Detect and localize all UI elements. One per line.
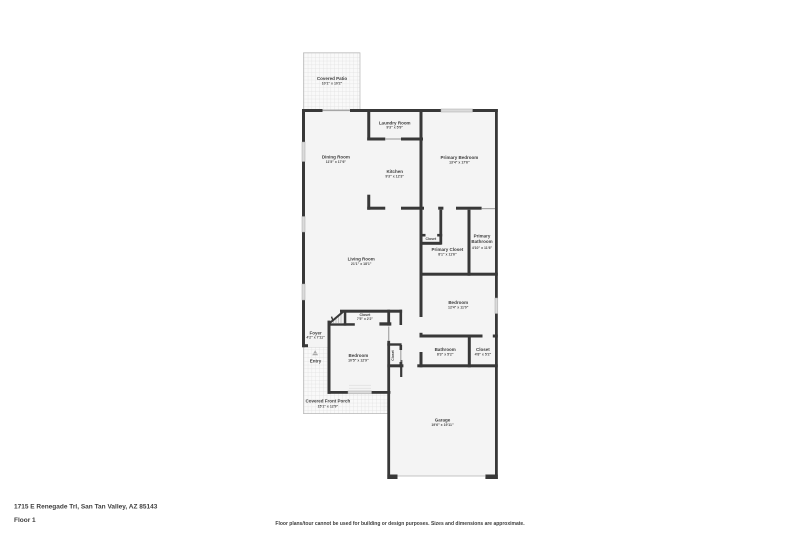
svg-text:Garage: Garage — [435, 418, 451, 423]
svg-text:Primary Bedroom: Primary Bedroom — [441, 155, 479, 160]
svg-text:1715 E Renegade Trl, San Tan V: 1715 E Renegade Trl, San Tan Valley, AZ … — [14, 504, 158, 511]
svg-text:12'4" x 11'0": 12'4" x 11'0" — [448, 305, 469, 309]
svg-text:Closet: Closet — [425, 237, 437, 241]
svg-text:Closet: Closet — [476, 347, 490, 352]
svg-text:15'1" x 12'9": 15'1" x 12'9" — [318, 404, 339, 408]
svg-text:8'3" x 5'2": 8'3" x 5'2" — [437, 352, 454, 356]
svg-text:Floor 1: Floor 1 — [14, 517, 36, 524]
svg-text:4'2" x 7'11": 4'2" x 7'11" — [306, 335, 325, 339]
svg-text:Floor plans/tour cannot be use: Floor plans/tour cannot be used for buil… — [275, 521, 525, 527]
svg-text:Entry: Entry — [310, 359, 322, 364]
svg-text:Bedroom: Bedroom — [349, 353, 369, 358]
svg-text:19'6" x 19'11": 19'6" x 19'11" — [431, 423, 454, 427]
svg-text:Closet: Closet — [391, 349, 395, 360]
svg-text:Covered Patio: Covered Patio — [317, 76, 348, 81]
svg-text:21'1" x 18'1": 21'1" x 18'1" — [351, 262, 372, 266]
svg-text:Covered Front Porch: Covered Front Porch — [306, 399, 351, 404]
svg-text:Primary Closet: Primary Closet — [432, 247, 464, 252]
svg-text:Primary: Primary — [474, 234, 491, 239]
svg-text:10'1" x 10'2": 10'1" x 10'2" — [322, 82, 343, 86]
svg-text:11'5" x 17'6": 11'5" x 17'6" — [326, 160, 347, 164]
svg-text:Bathroom: Bathroom — [471, 239, 492, 244]
svg-text:9'3" x 5'9": 9'3" x 5'9" — [386, 125, 403, 129]
svg-text:9'3" x 12'3": 9'3" x 12'3" — [385, 174, 404, 178]
svg-text:7'5" x 2'2": 7'5" x 2'2" — [357, 317, 374, 321]
svg-text:8'1" x 11'6": 8'1" x 11'6" — [438, 253, 457, 257]
svg-text:Kitchen: Kitchen — [386, 169, 403, 174]
svg-text:13'4" x 17'6": 13'4" x 17'6" — [449, 160, 470, 164]
svg-text:4'8" x 5'2": 4'8" x 5'2" — [475, 352, 492, 356]
svg-text:Bathroom: Bathroom — [435, 347, 456, 352]
svg-text:Dining Room: Dining Room — [322, 155, 350, 160]
svg-text:10'5" x 12'9": 10'5" x 12'9" — [348, 358, 369, 362]
svg-text:4'10" x 11'6": 4'10" x 11'6" — [472, 246, 493, 250]
